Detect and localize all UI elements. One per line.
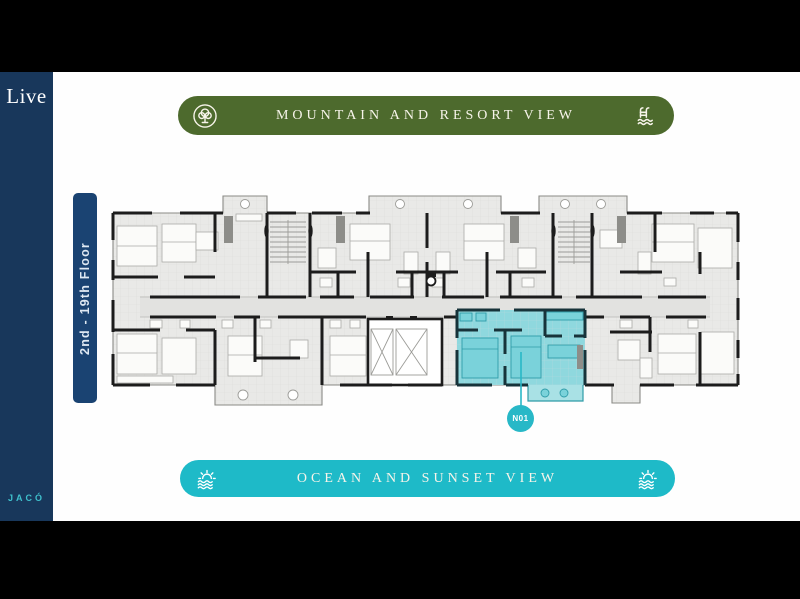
brand-sidebar: Live JACÓ — [0, 72, 53, 521]
elevator-core — [368, 316, 442, 385]
ocean-view-banner: OCEAN AND SUNSET VIEW — [180, 460, 675, 497]
unit-n01-badge[interactable]: N01 — [507, 405, 534, 432]
ocean-view-label: OCEAN AND SUNSET VIEW — [220, 471, 635, 487]
floor-range-label: 2nd - 19th Floor — [73, 193, 97, 403]
letterbox-top — [0, 0, 800, 72]
brand-logo: Live — [0, 84, 53, 109]
sunset-waves-icon — [194, 466, 220, 492]
floor-range-text: 2nd - 19th Floor — [78, 242, 92, 355]
brand-location: JACÓ — [0, 493, 53, 503]
mountain-view-label: MOUNTAIN AND RESORT VIEW — [218, 108, 634, 124]
floor-plan — [100, 180, 748, 420]
unit-n01-badge-label: N01 — [512, 414, 528, 423]
sunset-waves-icon — [635, 466, 661, 492]
page: MOUNTAIN AND RESORT VIEW OCEAN AND SUNSE… — [0, 0, 800, 599]
pool-ladder-icon — [634, 103, 660, 129]
column-glyph — [427, 277, 436, 286]
tree-icon — [192, 103, 218, 129]
letterbox-bottom — [0, 521, 800, 599]
mountain-view-banner: MOUNTAIN AND RESORT VIEW — [178, 96, 674, 135]
